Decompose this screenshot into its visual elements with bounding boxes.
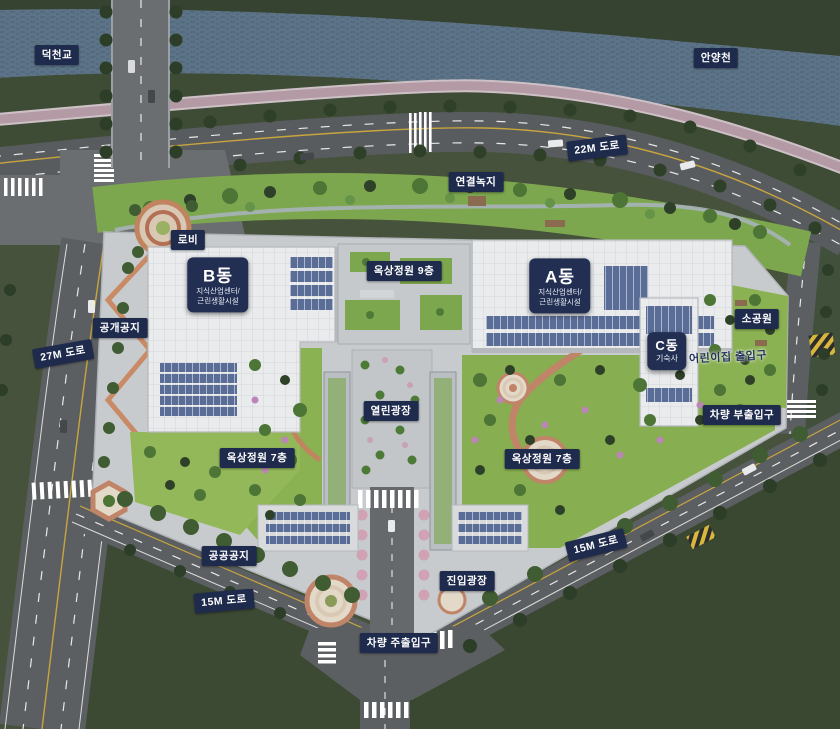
building-a-subtitle-1: 지식산업센터/: [538, 287, 581, 297]
building-c-title: C동: [655, 335, 678, 354]
building-a-subtitle-2: 근린생활시설: [538, 298, 581, 308]
site-plan: 덕천교 안양천 22M 도로 연결녹지 로비 옥상정원 9층 공개공지 27M …: [0, 0, 840, 729]
building-b-subtitle-1: 지식산업센터/: [196, 286, 239, 296]
label-deokcheon-bridge: 덕천교: [35, 45, 79, 65]
label-road-27m: 27M 도로: [32, 339, 94, 369]
label-connection-green: 연결녹지: [449, 172, 504, 192]
label-public-land: 공공공지: [202, 546, 257, 566]
label-layer: 덕천교 안양천 22M 도로 연결녹지 로비 옥상정원 9층 공개공지 27M …: [0, 0, 840, 729]
label-anyangcheon-river: 안양천: [694, 48, 738, 68]
label-rooftop-garden-7f-east: 옥상정원 7층: [505, 449, 580, 469]
label-road-15m-east: 15M 도로: [565, 528, 628, 562]
label-lobby: 로비: [171, 230, 205, 250]
label-open-plaza: 열린광장: [364, 401, 419, 421]
label-public-open-space: 공개공지: [93, 318, 148, 338]
label-rooftop-garden-7f-west: 옥상정원 7층: [220, 448, 295, 468]
label-small-park: 소공원: [735, 309, 779, 329]
label-road-22m: 22M 도로: [566, 134, 628, 161]
label-vehicle-sub-entrance: 차량 부출입구: [703, 405, 781, 425]
building-c-subtitle-1: 기숙사: [655, 354, 678, 365]
label-rooftop-garden-9f: 옥상정원 9층: [367, 261, 442, 281]
building-a-title: A동: [538, 262, 581, 287]
label-vehicle-main-entrance: 차량 주출입구: [360, 633, 438, 653]
label-entry-plaza: 진입광장: [440, 571, 495, 591]
building-b-title: B동: [196, 261, 239, 286]
label-daycare-entrance: 어린이집 출입구: [682, 344, 775, 370]
building-b-subtitle-2: 근린생활시설: [196, 297, 239, 307]
building-label-a: A동 지식산업센터/ 근린생활시설: [529, 258, 590, 313]
label-road-15m-west: 15M 도로: [193, 588, 254, 613]
building-label-b: B동 지식산업센터/ 근린생활시설: [187, 257, 248, 312]
building-label-c: C동 기숙사: [647, 332, 686, 370]
